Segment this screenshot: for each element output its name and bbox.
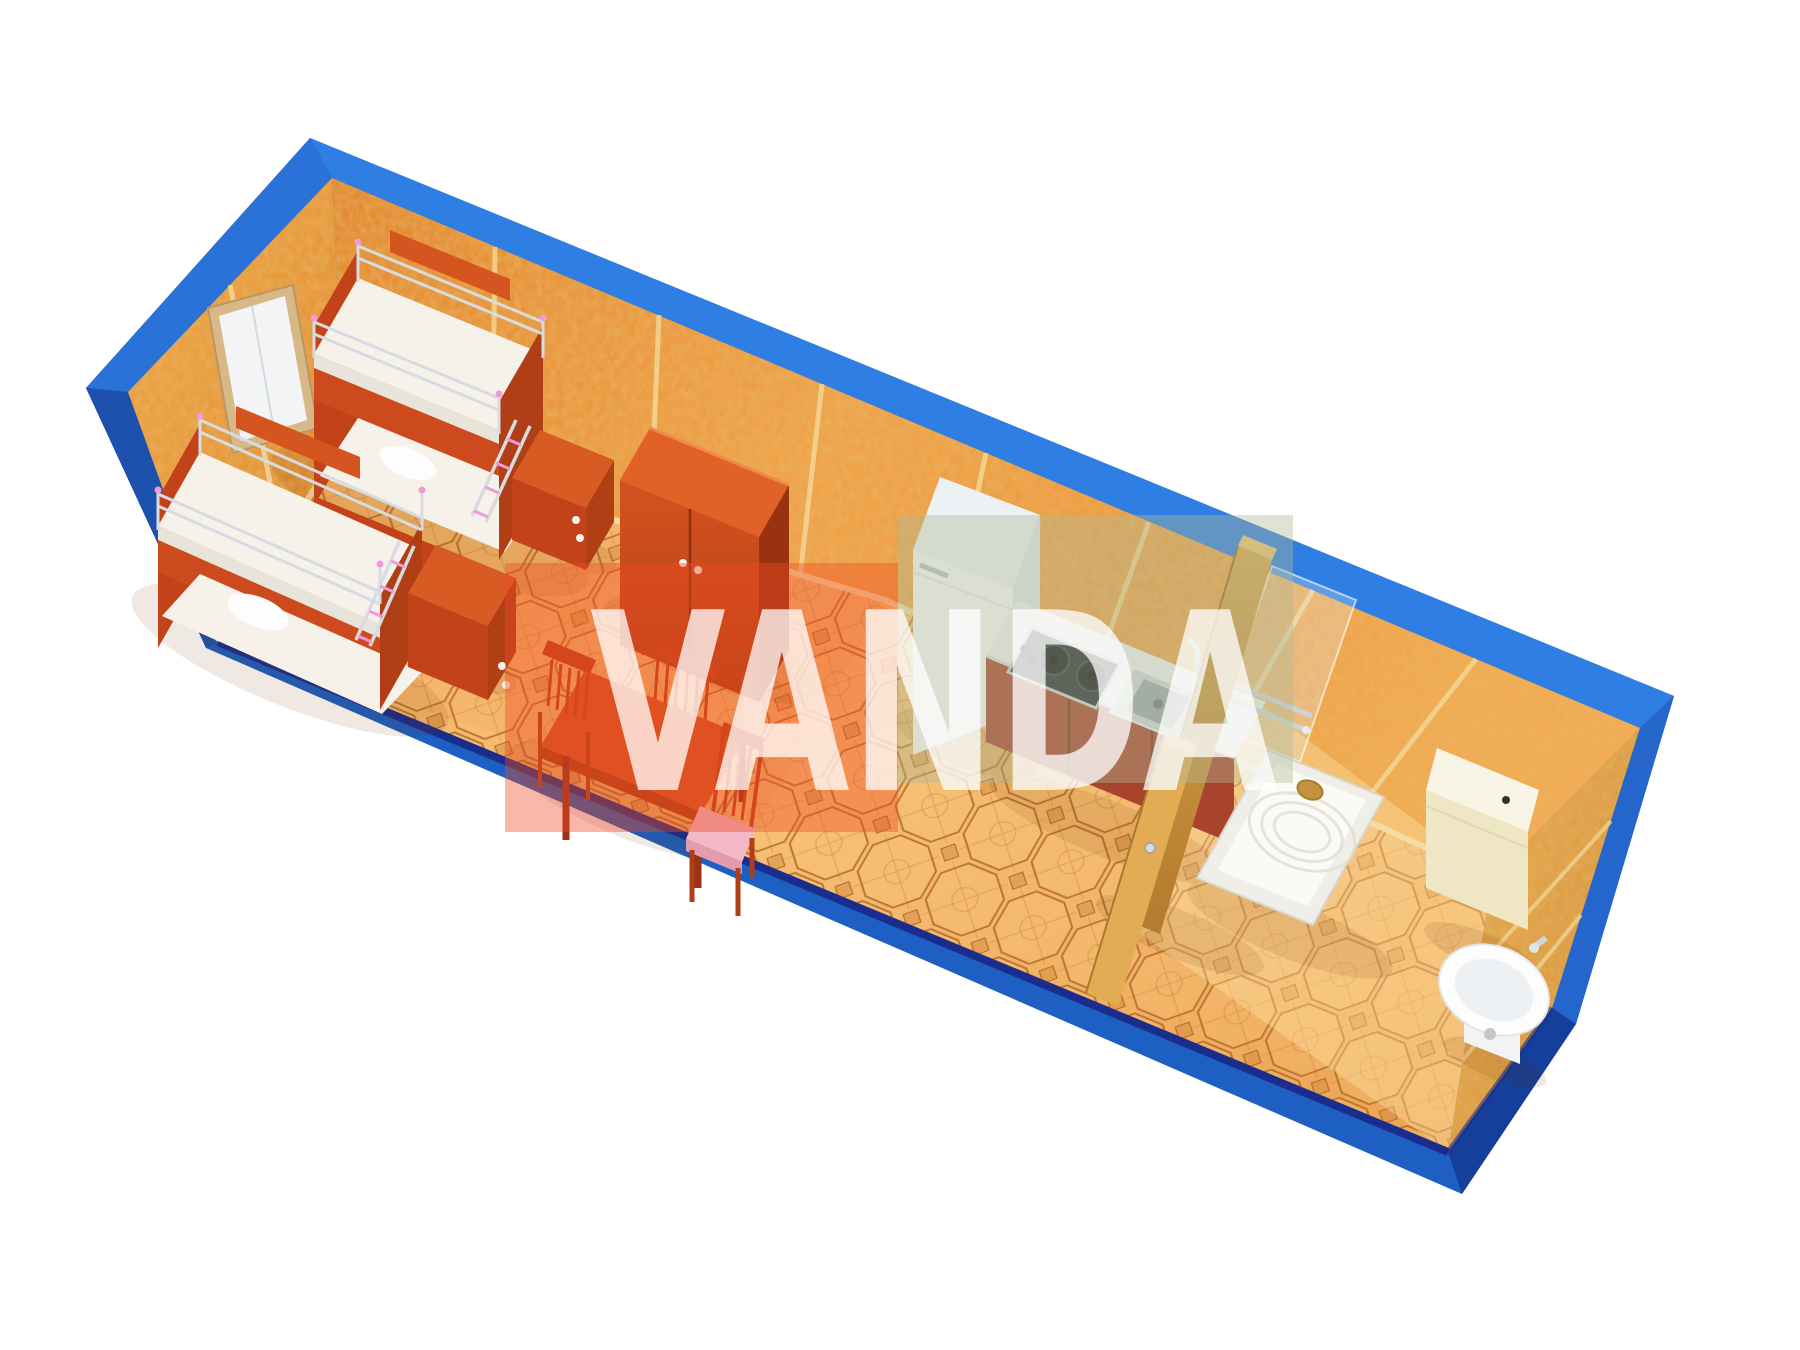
render-canvas: VANDA	[0, 0, 1800, 1350]
watermark-text: VANDA	[590, 561, 1278, 849]
knob	[498, 662, 506, 670]
knob	[572, 516, 580, 524]
container-house-render: VANDA	[0, 0, 1800, 1350]
flush-button	[1502, 796, 1510, 804]
watermark: VANDA	[505, 515, 1293, 849]
knob	[576, 534, 584, 542]
